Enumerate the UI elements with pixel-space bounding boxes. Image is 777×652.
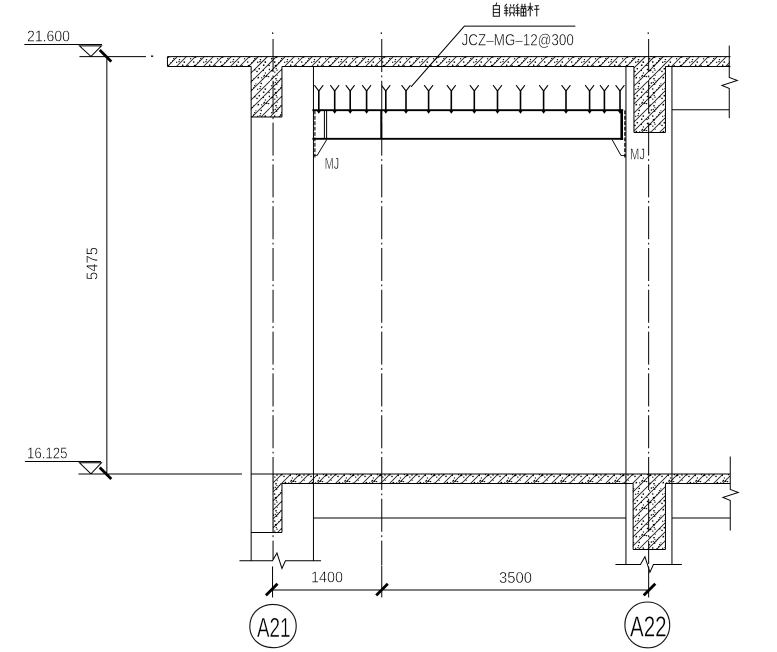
svg-text:3500: 3500 (499, 570, 532, 587)
svg-text:MJ: MJ (325, 156, 340, 173)
svg-text:A21: A21 (257, 612, 291, 643)
svg-text:1400: 1400 (311, 570, 343, 587)
svg-text:JCZ–MG–12@300: JCZ–MG–12@300 (462, 31, 574, 50)
svg-text:21.600: 21.600 (27, 29, 70, 46)
svg-text:5475: 5475 (85, 247, 102, 280)
svg-text:MJ: MJ (630, 147, 645, 164)
svg-text:16.125: 16.125 (27, 446, 68, 463)
svg-text:A22: A22 (630, 612, 667, 644)
